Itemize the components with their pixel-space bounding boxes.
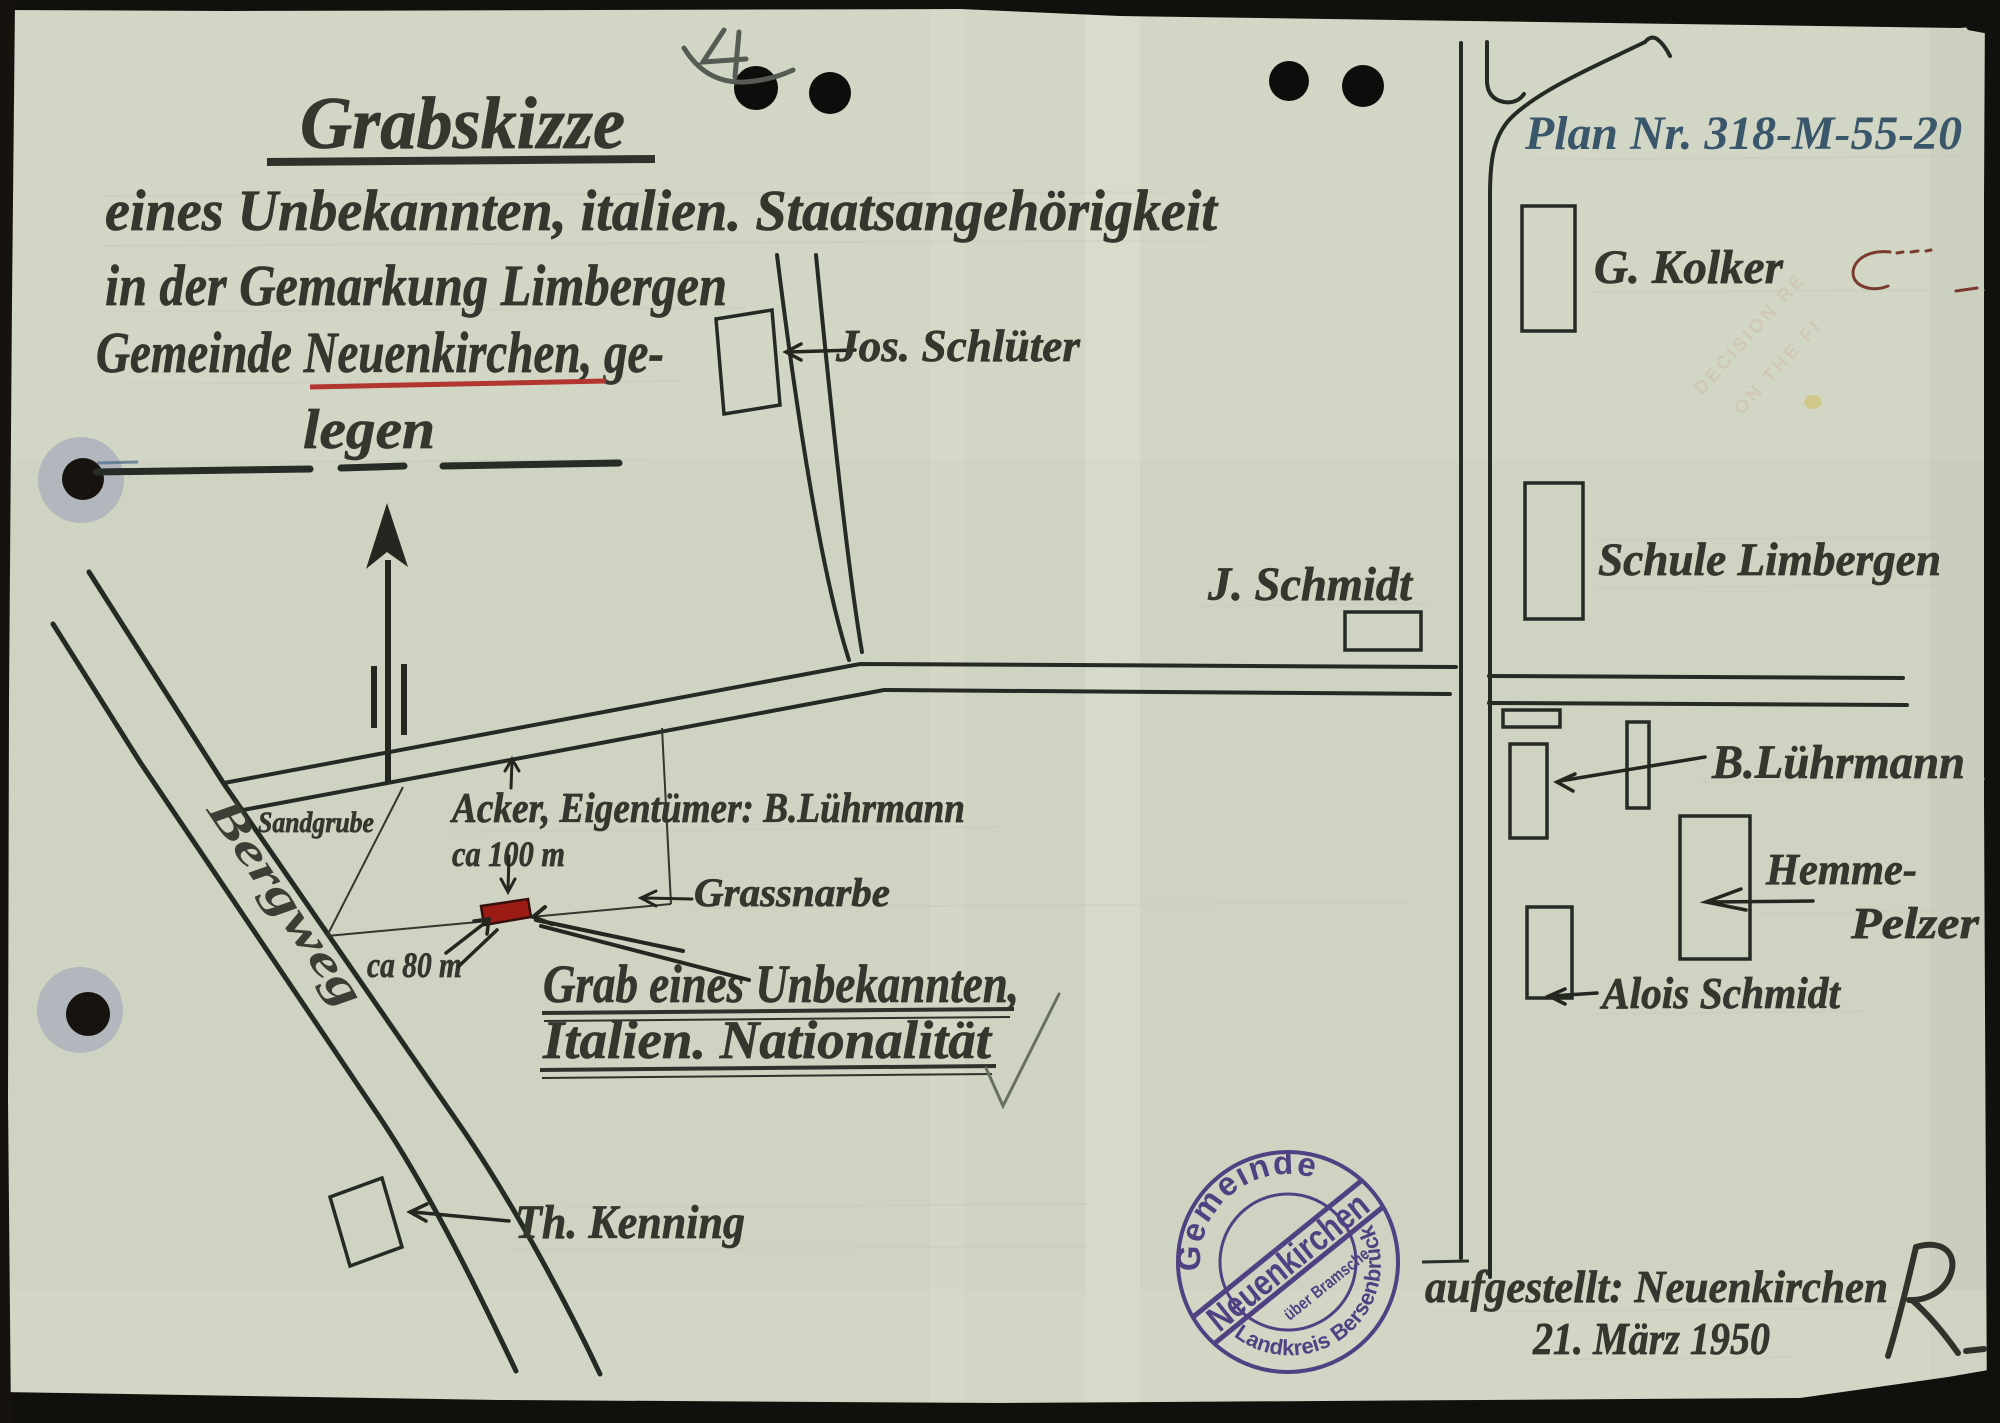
svg-text:B.Lührmann: B.Lührmann — [1711, 736, 1965, 789]
svg-text:Schule Limbergen: Schule Limbergen — [1598, 534, 1941, 586]
svg-text:Gemeinde Neuenkirchen, ge-: Gemeinde Neuenkirchen, ge- — [96, 320, 664, 385]
svg-text:aufgestellt: Neuenkirchen: aufgestellt: Neuenkirchen — [1425, 1261, 1888, 1312]
svg-text:Grabskizze: Grabskizze — [300, 83, 625, 165]
svg-text:J. Schmidt: J. Schmidt — [1207, 558, 1414, 611]
svg-text:Jos. Schlüter: Jos. Schlüter — [835, 320, 1081, 371]
svg-text:eines Unbekannten, italien. St: eines Unbekannten, italien. Staatsangehö… — [105, 178, 1219, 243]
svg-text:in der Gemarkung Limbergen: in der Gemarkung Limbergen — [105, 253, 727, 318]
svg-text:21. März 1950: 21. März 1950 — [1532, 1313, 1770, 1364]
svg-text:legen: legen — [303, 399, 435, 461]
svg-text:Grassnarbe: Grassnarbe — [694, 870, 890, 915]
svg-text:Acker, Eigentümer: B.Lührmann: Acker, Eigentümer: B.Lührmann — [449, 786, 965, 832]
svg-text:G. Kolker: G. Kolker — [1594, 241, 1784, 294]
svg-text:Hemme-: Hemme- — [1765, 845, 1917, 894]
svg-text:Italien. Nationalität: Italien. Nationalität — [542, 1010, 993, 1070]
svg-text:Plan Nr. 318-M-55-20: Plan Nr. 318-M-55-20 — [1524, 107, 1962, 160]
svg-text:Th. Kenning: Th. Kenning — [515, 1196, 745, 1249]
svg-text:Pelzer: Pelzer — [1850, 899, 1980, 948]
svg-text:Grab eines Unbekannten,: Grab eines Unbekannten, — [543, 954, 1019, 1014]
svg-text:Sandgrube: Sandgrube — [258, 806, 374, 839]
svg-text:Alois Schmidt: Alois Schmidt — [1599, 969, 1841, 1018]
